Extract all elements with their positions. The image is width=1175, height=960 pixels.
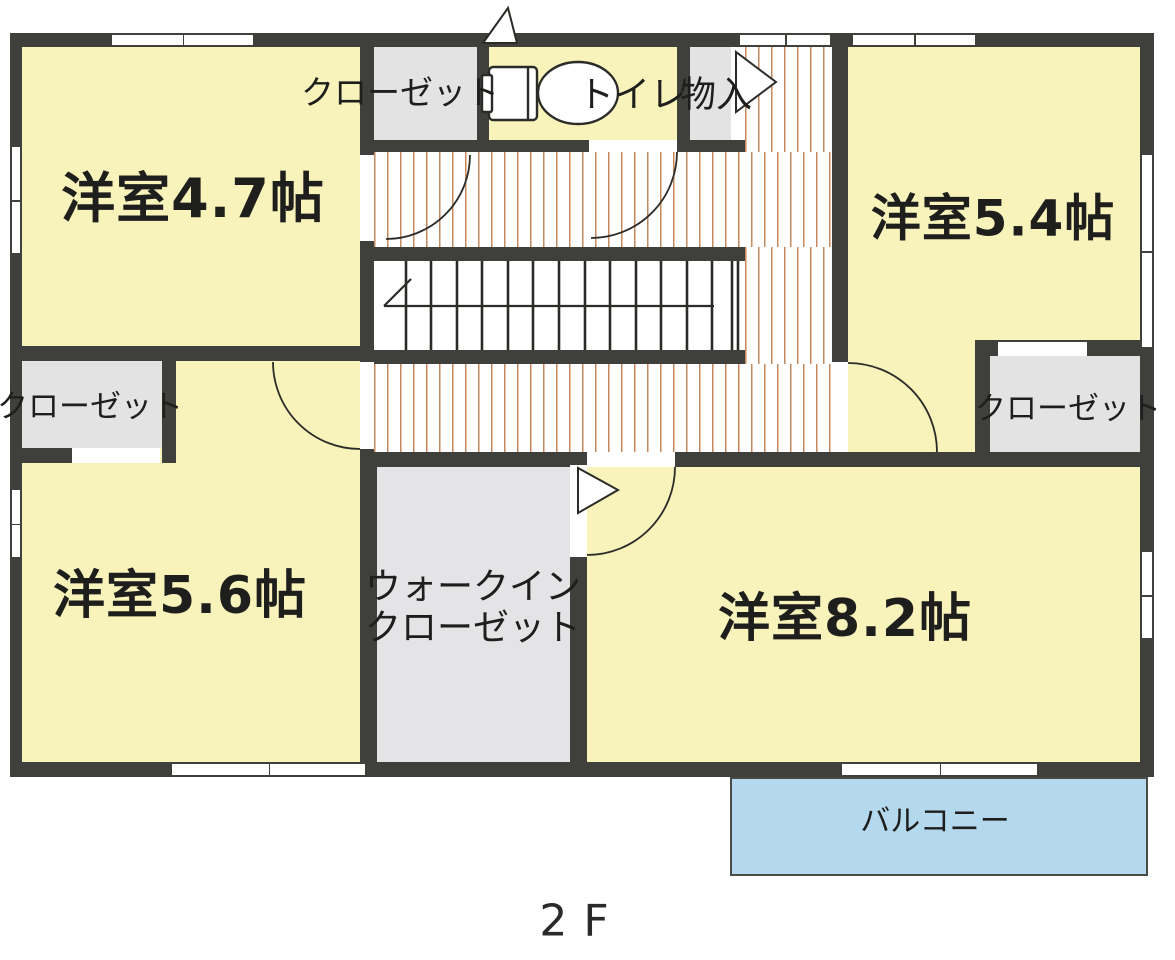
wall-toilet-bottom: [374, 140, 745, 152]
door-gap-room82: [587, 452, 675, 467]
wall-center-horizontal: [360, 452, 1154, 467]
wall-closet-left-bottom: [22, 448, 72, 463]
door-gap-toilet: [589, 140, 677, 152]
door-gap-room47: [360, 155, 374, 241]
window-top-hall: [740, 33, 830, 47]
closet-top-label: クローゼット: [301, 74, 499, 112]
hallway-right-mid: [745, 247, 832, 364]
door-gap-closet-left: [72, 448, 160, 463]
toilet-label: トイレ: [578, 74, 686, 115]
door-gap-room54: [832, 362, 848, 452]
door-gap-closet-right: [998, 342, 1087, 356]
room-47-label: 洋室4.7帖: [61, 168, 325, 230]
floor-title: 2F: [539, 897, 624, 948]
wall-stairs-bottom: [368, 350, 745, 364]
closet-right-label: クローゼット: [975, 392, 1161, 428]
stairwell-floor: [374, 261, 745, 350]
window-top-room47: [112, 33, 253, 47]
window-right-room54: [1140, 155, 1154, 347]
walk-in-closet-label: ウォークイン クローゼット: [365, 567, 581, 650]
window-left-room56: [10, 490, 22, 557]
room-82-label: 洋室8.2帖: [718, 590, 972, 650]
walk-in-closet-label-line1: ウォークイン: [365, 567, 581, 608]
closet-left-label: クローゼット: [0, 390, 183, 426]
window-left-room47: [10, 147, 22, 253]
window-bottom-room82: [842, 762, 1037, 777]
window-bottom-room56: [172, 762, 365, 777]
storage-label: 物入: [680, 74, 752, 115]
floor-plan-canvas: 洋室4.7帖 洋室5.4帖 洋室5.6帖 洋室8.2帖 クローゼット トイレ 物…: [0, 0, 1175, 960]
window-top-room54: [853, 33, 975, 47]
hallway-lower: [374, 364, 832, 452]
wall-stairs-top: [368, 247, 745, 261]
hallway-right-top: [745, 47, 832, 152]
wall-room47-bottom: [10, 346, 374, 361]
hallway-upper: [374, 152, 832, 247]
walk-in-closet-label-line2: クローゼット: [365, 608, 581, 649]
room-56-label: 洋室5.6帖: [53, 567, 307, 627]
wall-hall-room54: [832, 47, 848, 362]
balcony-label: バルコニー: [860, 805, 1009, 840]
room-54-label: 洋室5.4帖: [871, 190, 1116, 248]
window-right-room82: [1140, 552, 1154, 638]
door-gap-room56: [360, 362, 374, 449]
door-gap-wic: [570, 465, 587, 557]
